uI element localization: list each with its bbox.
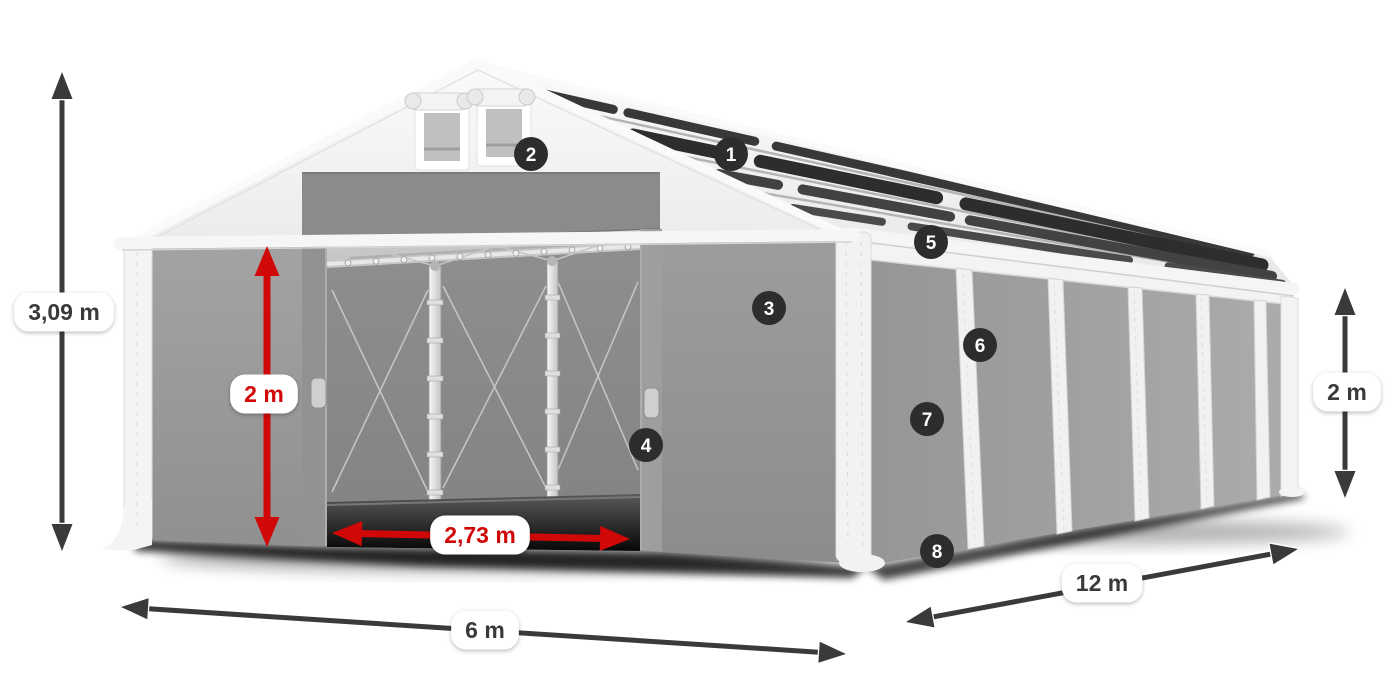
tent-illustration: 3,09 m2 m2,73 m6 m12 m2 m 12345678 bbox=[0, 0, 1400, 700]
front-wall-right bbox=[660, 235, 866, 564]
svg-text:2: 2 bbox=[526, 145, 537, 166]
svg-text:1: 1 bbox=[726, 145, 737, 166]
dimension-front-width: 6 m bbox=[121, 598, 846, 662]
callout-badge-2[interactable]: 2 bbox=[514, 137, 548, 171]
dimension-side-height: 2 m bbox=[1313, 288, 1381, 498]
dimension-label: 2,73 m bbox=[430, 516, 530, 555]
svg-text:8: 8 bbox=[932, 542, 943, 563]
svg-text:3,09 m: 3,09 m bbox=[28, 299, 100, 325]
dimension-label: 2 m bbox=[1313, 373, 1381, 412]
side-wall-corner-post bbox=[1281, 296, 1298, 496]
dimension-label: 2 m bbox=[230, 375, 298, 414]
arrowhead-icon bbox=[52, 72, 73, 99]
corner-post-front-left bbox=[100, 243, 152, 551]
callout-badge-6[interactable]: 6 bbox=[963, 328, 997, 362]
dimension-label: 6 m bbox=[451, 611, 519, 650]
arrowhead-icon bbox=[52, 524, 73, 551]
callout-badge-1[interactable]: 1 bbox=[714, 137, 748, 171]
callout-badge-7[interactable]: 7 bbox=[910, 402, 944, 436]
svg-text:4: 4 bbox=[641, 436, 652, 457]
arrowhead-icon bbox=[1335, 471, 1356, 498]
svg-text:2 m: 2 m bbox=[244, 381, 284, 407]
svg-text:6: 6 bbox=[975, 336, 986, 357]
callout-badge-5[interactable]: 5 bbox=[914, 225, 948, 259]
gable-vent-left bbox=[405, 93, 473, 170]
arrowhead-icon bbox=[906, 607, 934, 628]
dimension-label: 12 m bbox=[1062, 564, 1142, 603]
arrowhead-icon bbox=[121, 598, 149, 619]
callout-badge-4[interactable]: 4 bbox=[629, 428, 663, 462]
entrance-interior bbox=[320, 225, 650, 555]
svg-text:12 m: 12 m bbox=[1076, 570, 1128, 596]
door-handle-left[interactable] bbox=[311, 378, 326, 408]
dimension-total-height: 3,09 m bbox=[14, 72, 114, 551]
arrowhead-icon bbox=[818, 642, 846, 663]
svg-text:7: 7 bbox=[922, 410, 933, 431]
door-handle-right[interactable] bbox=[644, 388, 659, 418]
callout-badge-8[interactable]: 8 bbox=[920, 534, 954, 568]
svg-text:2 m: 2 m bbox=[1327, 379, 1367, 405]
svg-text:5: 5 bbox=[926, 233, 937, 254]
svg-text:6 m: 6 m bbox=[465, 617, 505, 643]
svg-text:2,73 m: 2,73 m bbox=[444, 522, 516, 548]
arrowhead-icon bbox=[1270, 544, 1298, 565]
svg-text:3: 3 bbox=[764, 299, 775, 320]
arrowhead-icon bbox=[1335, 288, 1356, 315]
dimension-label: 3,09 m bbox=[14, 293, 114, 332]
callout-badge-3[interactable]: 3 bbox=[752, 291, 786, 325]
tent-diagram: 3,09 m2 m2,73 m6 m12 m2 m 12345678 bbox=[0, 0, 1400, 700]
gable-fascia bbox=[120, 235, 854, 243]
